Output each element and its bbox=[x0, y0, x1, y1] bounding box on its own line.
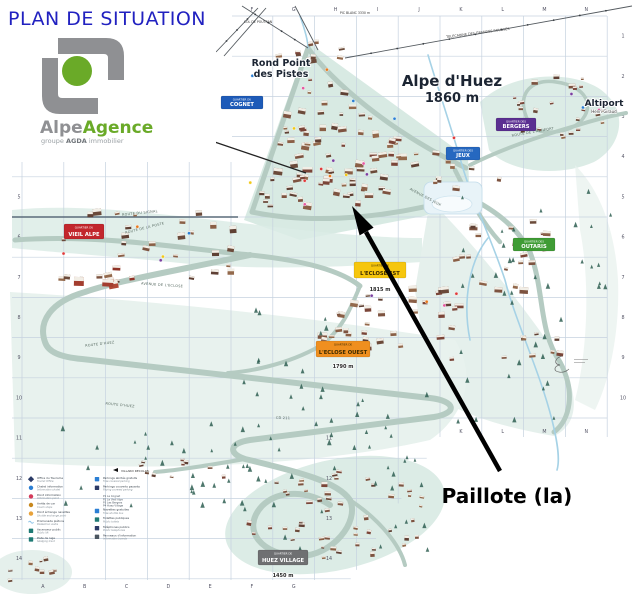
grid-row-number-right: 7 bbox=[621, 275, 624, 281]
pic-blanc-label: PIC BLANC 3330 m bbox=[340, 11, 370, 15]
grid-row-number-left: 12 bbox=[16, 476, 22, 482]
grid-row-number-right: 13 bbox=[326, 516, 332, 522]
grid-column-letter-bottom: G bbox=[292, 584, 296, 590]
grid-row-number-left: 9 bbox=[17, 355, 20, 361]
villard-reculas-label: VILLARD RECULAS bbox=[121, 469, 149, 473]
grid-row-number-right: 6 bbox=[621, 235, 624, 241]
grid-row-number-right: 2 bbox=[621, 74, 624, 80]
quarter-name: HUEZ VILLAGE bbox=[262, 558, 304, 564]
quarter-label-vieil_alpe: QUARTIER DUVIEIL ALPE bbox=[64, 224, 104, 239]
quarter-prefix: QUARTIER DES bbox=[506, 119, 526, 123]
resort-name: Alpe d'Huez bbox=[402, 72, 503, 90]
legend-label-en: Public telephones bbox=[103, 528, 126, 532]
quarter-name: L'ECLOSE OUEST bbox=[319, 350, 368, 356]
logo-circle-icon bbox=[62, 56, 92, 86]
eclose-est-altitude: 1815 m bbox=[370, 287, 391, 293]
quarter-prefix: QUARTIER DE bbox=[334, 342, 353, 346]
quarter-label-bergers: QUARTIER DESBERGERS bbox=[496, 118, 536, 131]
quarter-label-eclose_est: QUARTIER DEL'ECLOSE EST bbox=[354, 262, 406, 278]
legend-label-en: Free shuttle bus bbox=[103, 511, 124, 515]
legend-label-en: Public lift bbox=[37, 531, 50, 535]
grid-column-letter-bottom: F bbox=[251, 584, 254, 590]
quarter-name: VIEIL ALPE bbox=[68, 232, 100, 238]
quarter-name: L'ECLOSE EST bbox=[360, 271, 400, 277]
quarter-label-outaris: QUARTIER DESOUTARIS bbox=[513, 238, 555, 251]
quarter-name: BERGERS bbox=[502, 124, 529, 130]
legend-label-en: Sledging track bbox=[37, 539, 56, 543]
grid-column-letter-top: I bbox=[377, 7, 378, 13]
grid-column-letter-bottom: D bbox=[166, 584, 170, 590]
title-block: PLAN DE SITUATION AlpeAgence groupe AGDA… bbox=[0, 0, 216, 158]
grid-row-number-left: 7 bbox=[17, 275, 20, 281]
quarter-label-jeux: QUARTIER DESJEUX bbox=[446, 147, 480, 160]
situation-map: ABCDEFFGGHIJKKLLMMNN12345566778899101011… bbox=[0, 0, 640, 596]
grid-column-letter-top: H bbox=[334, 7, 338, 13]
grid-row-number-left: 11 bbox=[16, 436, 22, 442]
col-de-poutran-label: COL DE POUTRAN bbox=[244, 20, 273, 24]
grid-row-number-left: 8 bbox=[17, 315, 20, 321]
grid-column-letter-top: G bbox=[292, 7, 296, 13]
rond-point-label: Rond Point bbox=[252, 58, 311, 69]
rond-point-label-2: des Pistes bbox=[254, 69, 309, 80]
resort-altitude: 1860 m bbox=[425, 91, 479, 106]
legend-label-en: Information point bbox=[37, 496, 60, 500]
quarter-label-cognet: QUARTIER DUCOGNET bbox=[221, 96, 263, 109]
quarter-prefix: QUARTIER DU bbox=[75, 225, 94, 229]
quarter-name: COGNET bbox=[230, 102, 254, 108]
grid-row-number-right: 8 bbox=[621, 315, 624, 321]
grid-column-letter-bottom: B bbox=[83, 584, 86, 590]
grid-column-letter-bottom: E bbox=[209, 584, 212, 590]
grid-column-letter-bottom: M bbox=[542, 429, 546, 435]
grid-row-number-right: 9 bbox=[621, 355, 624, 361]
grid-row-number-left: 14 bbox=[16, 556, 22, 562]
grid-row-number-right: 4 bbox=[621, 154, 624, 160]
legend-label-en: Information chalet bbox=[37, 488, 61, 492]
grid-column-letter-top: M bbox=[542, 7, 546, 13]
grid-column-letter-bottom: L bbox=[501, 429, 504, 435]
road-name-label: CD 211 bbox=[276, 416, 290, 420]
grid-column-letter-top: J bbox=[417, 7, 419, 13]
quarter-name: JEUX bbox=[455, 153, 470, 159]
page-title: PLAN DE SITUATION bbox=[8, 8, 206, 30]
grid-column-letter-top: L bbox=[501, 7, 504, 13]
grid-column-letter-bottom: N bbox=[585, 429, 589, 435]
quarter-prefix: QUARTIER DU bbox=[233, 97, 252, 101]
huez-village-altitude: 1450 m bbox=[273, 573, 294, 579]
legend-label-en: Information boards bbox=[103, 537, 128, 541]
grid-row-number-right: 1 bbox=[621, 34, 624, 40]
grid-row-number-left: 13 bbox=[16, 516, 22, 522]
grid-row-number-right: 14 bbox=[326, 556, 332, 562]
quarter-label-eclose_ouest: QUARTIER DEL'ECLOSE OUEST bbox=[316, 341, 370, 357]
legend-label-en: Pedestrian walks bbox=[37, 522, 59, 526]
agency-tagline: groupe AGDA immobilier bbox=[41, 137, 124, 145]
legend-label-en: Shuttle exchange point bbox=[37, 513, 67, 517]
eclose-ouest-altitude: 1790 m bbox=[333, 364, 354, 370]
legend-label-en: Coach stops bbox=[37, 505, 53, 509]
quarter-label-huez_village: QUARTIER DEHUEZ VILLAGE bbox=[258, 550, 308, 565]
grid-row-number-left: 5 bbox=[17, 194, 20, 200]
legend-label-en: Paying covered parking bbox=[103, 488, 133, 492]
grid-row-number-left: 10 bbox=[16, 395, 22, 401]
grid-column-letter-top: N bbox=[585, 7, 589, 13]
paillote-callout-label: Paillote (la) bbox=[442, 484, 573, 508]
quarter-name: OUTARIS bbox=[521, 244, 547, 250]
altiport-sublabel: Henri Giraud bbox=[591, 109, 617, 114]
legend-label-en: Tourist Office bbox=[37, 479, 54, 483]
quarter-prefix: QUARTIER DES bbox=[453, 148, 473, 152]
altiport-label: Altiport bbox=[585, 99, 625, 109]
legend-label-en: Public toilets bbox=[103, 519, 120, 523]
quarter-prefix: QUARTIER DES bbox=[524, 239, 544, 243]
quarter-prefix: QUARTIER DE bbox=[274, 551, 293, 555]
grid-row-number-right: 5 bbox=[621, 194, 624, 200]
grid-row-number-right: 10 bbox=[620, 395, 626, 401]
agency-name: AlpeAgence bbox=[40, 118, 153, 138]
legend-label-en: Free covered parking bbox=[103, 479, 130, 483]
